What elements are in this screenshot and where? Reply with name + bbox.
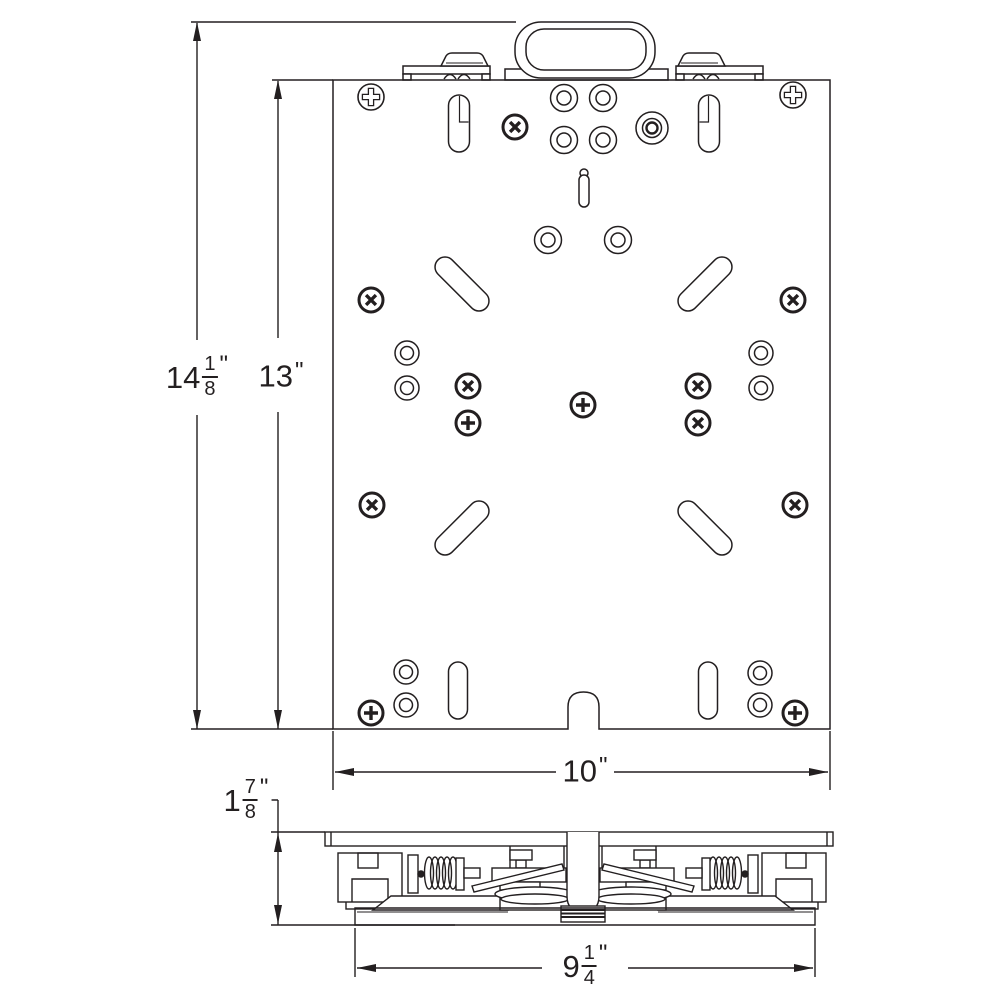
diagonal-slot-lower-left (431, 497, 493, 559)
dim-whole: 10 (562, 756, 596, 787)
dim-whole: 14 (166, 362, 200, 393)
dim-base-width-label: 9 1 4 " (560, 942, 611, 990)
spring-left (408, 855, 480, 893)
dim-profile-height-label: 1 7 8 " (221, 776, 272, 824)
carry-handle (505, 22, 668, 80)
latch-right (676, 53, 763, 80)
dim-whole: 1 (224, 785, 241, 816)
dim-fraction: 7 8 (243, 777, 258, 823)
technical-drawing-page: 14 1 8 " 13 " 10 " 1 7 8 " 9 1 4 " (0, 0, 1000, 1000)
keyhole-slot-right (699, 95, 720, 152)
center-post (567, 832, 599, 912)
dim-fraction: 1 8 (202, 354, 217, 400)
diagonal-slot-lower-right (674, 497, 736, 559)
dim-overall-height-label: 14 1 8 " (163, 353, 231, 401)
dim-plate-height-label: 13 " (255, 360, 306, 393)
latch-left (403, 53, 490, 80)
dim-unit: " (295, 360, 304, 384)
drawing-canvas (0, 0, 1000, 1000)
center-slot (579, 169, 589, 207)
dim-plate-width-label: 10 " (559, 755, 610, 788)
keyhole-slot-left (449, 95, 470, 152)
diagonal-slot-upper-right (674, 253, 736, 315)
side-view (325, 832, 833, 925)
dim-unit: " (260, 776, 269, 800)
dim-unit: " (220, 353, 229, 377)
bottom-slot-right (699, 662, 718, 719)
dim-fraction: 1 4 (582, 943, 597, 989)
spring-right (686, 855, 758, 893)
dim-whole: 9 (563, 951, 580, 982)
diagonal-slot-upper-left (431, 253, 493, 315)
top-view (333, 22, 830, 729)
dim-whole: 13 (258, 361, 292, 392)
dim-unit: " (599, 755, 608, 779)
bottom-slot-left (449, 662, 468, 719)
dim-unit: " (599, 942, 608, 966)
